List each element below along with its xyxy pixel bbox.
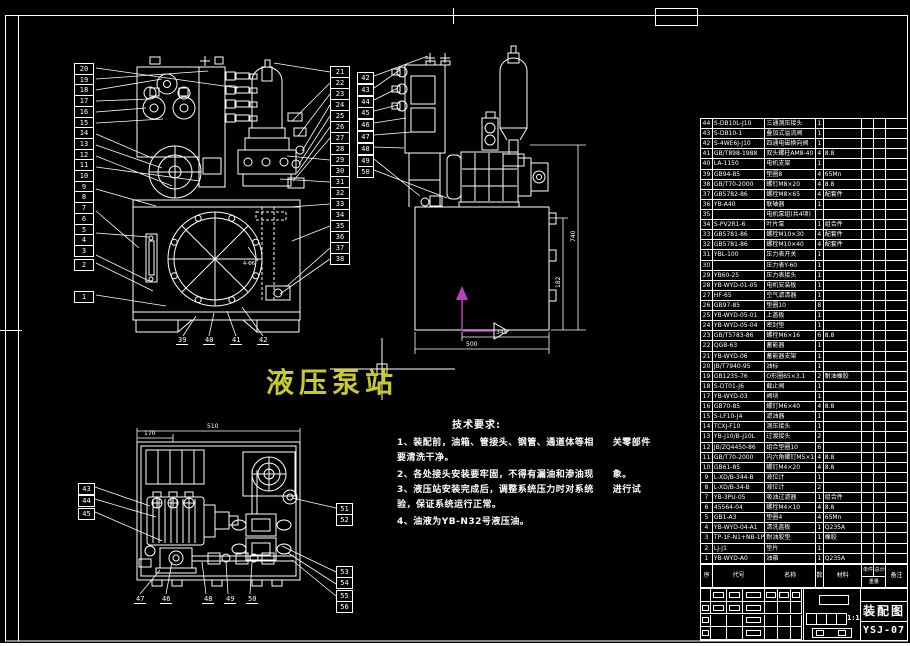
title-block-cell [791, 615, 802, 628]
title-block-cell [791, 589, 802, 602]
bom-cell: 压力表Y-60 [765, 261, 815, 270]
bom-cell: 蓄能器 [765, 341, 815, 350]
bom-cell [874, 422, 886, 431]
bom-cell: 9 [701, 473, 713, 482]
bom-cell: 螺栓M6×16 [765, 331, 815, 340]
bom-cell [886, 210, 907, 219]
bom-cell: 耐油胶垫 [765, 533, 815, 542]
bom-cell [886, 422, 907, 431]
bom-cell: 1 [816, 129, 824, 138]
bom-row-30: 30压力表Y-601 [701, 261, 907, 271]
bom-cell: 8.8 [824, 180, 863, 189]
bom-cell: 4 [816, 463, 824, 472]
bom-cell: 过渡接头 [765, 432, 815, 441]
bom-cell [886, 271, 907, 280]
bom-cell: 21 [701, 352, 713, 361]
bom-cell: 2 [701, 544, 713, 553]
bom-cell: 44 [701, 119, 713, 128]
bom-cell: GB70-85 [713, 402, 765, 411]
bom-cell [886, 341, 907, 350]
callout-plan_bottom-50: 50 [246, 595, 258, 604]
bom-row-3: 3TP-1F-N1+NB-1P耐油胶垫1橡胶 [701, 533, 907, 543]
bom-cell: 1 [816, 321, 824, 330]
bom-cell: YB60-25 [713, 271, 765, 280]
bom-cell [874, 180, 886, 189]
bom-cell [886, 473, 907, 482]
bom-cell: YB-WYD-05-01 [713, 311, 765, 320]
bom-cell: 油标 [765, 362, 815, 371]
bom-cell [874, 473, 886, 482]
bom-cell: 螺钉M8×20 [765, 180, 815, 189]
drawing-type-label: 装配图 [861, 602, 907, 622]
callout-plan_bottom-47: 47 [134, 595, 146, 604]
bom-cell [824, 483, 863, 492]
bom-cell: GB5782-86 [713, 190, 765, 199]
bom-cell: 配套件 [824, 230, 863, 239]
bom-cell: 滤油器 [765, 412, 815, 421]
title-block: 1:1 装配图 YSJ-07 [700, 588, 908, 641]
bom-cell: 吸油过滤器 [765, 493, 815, 502]
bom-table: 44S-DB10L-J10三通测压接头143S-DB10-1叠加式溢流阀142S… [700, 118, 908, 588]
drawing-number: YSJ-07 [861, 622, 907, 640]
bom-cell: 1 [816, 392, 824, 401]
bom-cell: 1 [816, 271, 824, 280]
bom-cell: 密封垫 [765, 321, 815, 330]
bom-cell: 29 [701, 271, 713, 280]
bom-cell: 上盖板 [765, 311, 815, 320]
bom-cell [886, 119, 907, 128]
bom-row-2: 2LJ-J1垫片1 [701, 544, 907, 554]
bom-cell [886, 402, 907, 411]
bom-cell [886, 170, 907, 179]
bom-cell: 2 [816, 372, 824, 381]
bom-cell: 65Mn [824, 513, 863, 522]
bom-cell [874, 432, 886, 441]
bom-cell [874, 372, 886, 381]
bom-row-41: 41GB/T898-1988双头螺柱AM8-4048.8 [701, 149, 907, 159]
bom-row-5: 5GB1-A3垫圈4465Mn [701, 513, 907, 523]
bom-cell [862, 149, 874, 158]
bom-cell: 油箱 [765, 554, 815, 563]
signature-mark [779, 592, 788, 598]
bom-cell [862, 341, 874, 350]
bom-cell: O形圈65×3.1 [765, 372, 815, 381]
bom-rows: 44S-DB10L-J10三通测压接头143S-DB10-1叠加式溢流阀142S… [701, 119, 907, 564]
title-block-cell [778, 589, 791, 602]
callout-plan_left-44: 44 [78, 495, 95, 507]
bom-cell [862, 321, 874, 330]
title-block-cell [711, 589, 727, 602]
bom-cell [874, 200, 886, 209]
bom-cell [886, 331, 907, 340]
bom-cell: 1 [816, 362, 824, 371]
bom-cell: YB-3PU-05 [713, 493, 765, 502]
title-block-cell [701, 602, 711, 615]
bom-cell: 1 [816, 382, 824, 391]
bom-cell: Q235A [824, 554, 863, 563]
bom-cell: GB/T5783-86 [713, 331, 765, 340]
bom-cell: 橡胶 [824, 533, 863, 542]
title-block-blank-cell [861, 589, 907, 602]
bom-cell: 8.8 [824, 149, 863, 158]
bom-cell [824, 119, 863, 128]
callout-side_left-46: 46 [357, 119, 374, 131]
callout-side_left-50: 50 [357, 166, 374, 178]
bom-cell: 1 [816, 291, 824, 300]
bom-cell: 1 [816, 422, 824, 431]
bom-cell: Q235A [824, 523, 863, 532]
bom-cell: 8 [701, 483, 713, 492]
bom-cell: 23 [701, 331, 713, 340]
bom-row-16: 16GB70-85螺钉M6×4048.8 [701, 402, 907, 412]
bom-cell: 37 [701, 190, 713, 199]
callout-side_left-48: 48 [357, 143, 374, 155]
callout-front_bottom-41: 41 [230, 336, 242, 345]
dim-plan-width: 510 [207, 423, 218, 430]
front-view [96, 56, 330, 336]
bom-header-cell: 代号 [713, 565, 765, 587]
bom-cell [886, 301, 907, 310]
bom-row-29: 29YB60-25压力表接头1 [701, 271, 907, 281]
bom-cell [874, 412, 886, 421]
bom-cell: 1 [816, 473, 824, 482]
bom-cell [713, 210, 765, 219]
bom-cell [862, 372, 874, 381]
bom-row-44: 44S-DB10L-J10三通测压接头1 [701, 119, 907, 129]
bom-cell [862, 119, 874, 128]
callout-side_left-45: 45 [357, 107, 374, 119]
bom-cell: 2 [816, 483, 824, 492]
bom-row-21: 21YB-WYD-06蓄能器支架1 [701, 352, 907, 362]
bom-cell [874, 533, 886, 542]
bom-cell: 耐油橡胶 [824, 372, 863, 381]
bom-cell [862, 170, 874, 179]
title-block-cell [727, 602, 743, 615]
bom-cell [874, 513, 886, 522]
bom-row-43: 43S-DB10-1叠加式溢流阀1 [701, 129, 907, 139]
tech-requirement-line: 2、各处接头安装要牢固，不得有漏油和渗油现 象。 [397, 469, 632, 481]
bom-cell [874, 503, 886, 512]
bom-cell [886, 554, 907, 563]
bom-row-33: 33GB5781-86螺栓M10×304配套件 [701, 230, 907, 240]
bom-header-cell: 材料 [824, 565, 863, 587]
bom-cell: 1 [816, 311, 824, 320]
callout-side_left-47: 47 [357, 131, 374, 143]
bom-header-cell: 重量 [862, 577, 885, 587]
bom-row-14: 14TCXJ-F10测压接头1 [701, 422, 907, 432]
bom-cell: JB/ZQ4450-86 [713, 443, 765, 452]
callout-plan_right-52: 52 [336, 514, 353, 526]
bom-row-28: 28YB-WYD-01-05电机安装板1 [701, 281, 907, 291]
bom-cell: 16 [701, 402, 713, 411]
bom-cell: 4 [816, 503, 824, 512]
bom-cell [874, 210, 886, 219]
bom-row-4: 4YB-WYD-04-A1清洗盖板1Q235A [701, 523, 907, 533]
bom-cell: 1 [816, 554, 824, 563]
bom-cell: 1 [816, 119, 824, 128]
callout-side_left-42: 42 [357, 72, 374, 84]
bom-cell: QGB-63 [713, 341, 765, 350]
dimension-lines-plan [137, 428, 300, 442]
title-block-cell [743, 615, 765, 628]
bom-cell: 8.8 [824, 463, 863, 472]
bom-row-38: 38GB/T70-2000螺钉M8×2048.8 [701, 180, 907, 190]
signature-mark [713, 605, 724, 611]
bom-cell [886, 372, 907, 381]
bom-row-9: 9L-XD/B-344-B液位计1 [701, 473, 907, 483]
bom-cell [862, 331, 874, 340]
callout-front_left-3: 3 [74, 245, 94, 257]
bom-cell: 4 [701, 523, 713, 532]
bom-row-7: 7YB-3PU-05吸油过滤器1组合件 [701, 493, 907, 503]
bom-cell: GB97-85 [713, 301, 765, 310]
bom-row-1: 1YB-WYD-A0油箱1Q235A [701, 554, 907, 564]
bom-cell [886, 463, 907, 472]
bom-cell [874, 281, 886, 290]
bom-cell [886, 453, 907, 462]
bom-cell: GB/T898-1988 [713, 149, 765, 158]
bom-cell [862, 463, 874, 472]
bom-cell: 联轴器 [765, 200, 815, 209]
bom-cell: 1 [816, 281, 824, 290]
bom-cell: 电机泵组(共4项) [765, 210, 815, 219]
callout-plan_bottom-49: 49 [224, 595, 236, 604]
bom-cell [862, 129, 874, 138]
bom-cell [886, 432, 907, 441]
bom-cell: 组合件 [824, 493, 863, 502]
bom-cell: GB5781-86 [713, 240, 765, 249]
bom-cell [824, 432, 863, 441]
callout-plan_bottom-46: 46 [160, 595, 172, 604]
signature-mark [702, 605, 709, 611]
bom-cell: 7 [701, 493, 713, 502]
bom-cell: 4 [816, 513, 824, 522]
signature-mark [746, 592, 761, 598]
bom-cell [862, 513, 874, 522]
bom-cell: 4 [816, 180, 824, 189]
title-block-cell [727, 589, 743, 602]
bom-cell [824, 311, 863, 320]
bom-cell: 三通测压接头 [765, 119, 815, 128]
bom-row-34: 34S-PV2R1-6叶片泵1组合件 [701, 220, 907, 230]
bom-cell [874, 382, 886, 391]
bom-cell [862, 180, 874, 189]
bom-cell: 组合件 [824, 220, 863, 229]
bom-cell: 垫圈10 [765, 301, 815, 310]
side-view [374, 46, 586, 354]
bom-cell: 叠加式溢流阀 [765, 129, 815, 138]
bom-cell: 压力表接头 [765, 271, 815, 280]
bom-row-20: 20JB/T7940-95油标1 [701, 362, 907, 372]
bom-cell [874, 250, 886, 259]
bom-cell [824, 412, 863, 421]
bom-cell [874, 362, 886, 371]
bom-cell [874, 402, 886, 411]
bom-cell [886, 493, 907, 502]
bom-row-25: 25YB-WYD-05-01上盖板1 [701, 311, 907, 321]
bom-row-36: 36YB-A40联轴器1 [701, 200, 907, 210]
bom-cell: 8.8 [824, 503, 863, 512]
callout-front_left_lower-1: 1 [74, 291, 94, 303]
bom-cell [874, 453, 886, 462]
bom-cell: S-DB10L-J10 [713, 119, 765, 128]
callout-front_bottom-42: 42 [257, 336, 269, 345]
bom-cell [862, 554, 874, 563]
signature-mark [746, 617, 761, 623]
callout-plan_left-45: 45 [78, 508, 95, 520]
bom-cell: 39 [701, 170, 713, 179]
bom-cell [824, 200, 863, 209]
bom-row-24: 24YB-WYD-05-04密封垫1 [701, 321, 907, 331]
bom-cell: 22 [701, 341, 713, 350]
bom-cell [886, 321, 907, 330]
bom-cell [874, 352, 886, 361]
bom-cell [862, 473, 874, 482]
tech-requirement-line: 要清洗干净。 [397, 452, 454, 464]
bom-cell: YB-A40 [713, 200, 765, 209]
bom-cell [886, 159, 907, 168]
bom-cell [824, 271, 863, 280]
bom-cell: 8.8 [824, 402, 863, 411]
bom-cell: S-DT01-J6 [713, 382, 765, 391]
bom-cell [862, 352, 874, 361]
bom-cell: L-XD/B-344-B [713, 473, 765, 482]
bom-cell [862, 301, 874, 310]
bom-cell: 65Mn [824, 170, 863, 179]
bom-cell [862, 271, 874, 280]
bom-row-26: 26GB97-85垫圈108 [701, 301, 907, 311]
bom-cell: 叶片泵 [765, 220, 815, 229]
bom-cell [824, 261, 863, 270]
bom-header-cell: 备注 [886, 565, 907, 587]
bom-cell: 18 [701, 382, 713, 391]
bom-cell: 19 [701, 372, 713, 381]
bom-cell: 四通电磁换向阀 [765, 139, 815, 148]
bom-cell: 2 [816, 432, 824, 441]
title-block-cell [765, 627, 778, 640]
bom-cell: 1 [816, 352, 824, 361]
bom-cell: 1 [816, 250, 824, 259]
bom-cell [886, 362, 907, 371]
bom-cell [874, 331, 886, 340]
bom-cell: 41 [701, 149, 713, 158]
bom-cell: S-4WE6J-J10 [713, 139, 765, 148]
bom-cell [862, 200, 874, 209]
title-block-cell [778, 627, 791, 640]
bom-cell: YB-WYD-06 [713, 352, 765, 361]
bom-cell: 液位计 [765, 483, 815, 492]
bom-cell [824, 210, 863, 219]
bom-cell: JB/T7940-95 [713, 362, 765, 371]
title-block-cell [711, 602, 727, 615]
tech-requirements-heading: 技术要求: [452, 420, 501, 432]
callout-plan_right-54: 54 [336, 577, 353, 589]
bom-cell [886, 544, 907, 553]
bom-cell: 11 [701, 453, 713, 462]
bom-cell: S-PV2R1-6 [713, 220, 765, 229]
signature-mark [792, 592, 800, 598]
bom-cell: YB-WYD-04-A1 [713, 523, 765, 532]
bom-cell [862, 210, 874, 219]
signature-mark [746, 630, 761, 636]
bom-cell: 1 [816, 341, 824, 350]
bom-cell: L-XD/B-34-B [713, 483, 765, 492]
bom-cell [874, 149, 886, 158]
drawing-title: 液压泵站 [266, 368, 398, 398]
title-block-mark-box [819, 595, 849, 605]
bom-cell: 1 [816, 139, 824, 148]
signature-mark [702, 630, 709, 636]
title-block-cell [778, 615, 791, 628]
title-block-seg-4 [836, 613, 847, 625]
bom-cell [874, 301, 886, 310]
dim-side-inner: 182 [555, 277, 562, 288]
bom-cell: GB1235-76 [713, 372, 765, 381]
bom-cell: 28 [701, 281, 713, 290]
bom-cell [886, 523, 907, 532]
bom-row-18: 18S-DT01-J6截止阀1 [701, 382, 907, 392]
bom-row-6: 645564-04螺栓M4×1048.8 [701, 503, 907, 513]
oil-tank-front [133, 200, 300, 332]
bom-cell: 1 [816, 220, 824, 229]
cad-sheet[interactable]: 液压泵站 技术要求: 1、装配前，油箱、管接头、钢管、通道体等相 关零部件要清洗… [0, 0, 910, 646]
title-block-cell [765, 602, 778, 615]
bom-row-42: 42S-4WE6J-J10四通电磁换向阀1 [701, 139, 907, 149]
bom-row-8: 8L-XD/B-34-B液位计2 [701, 483, 907, 493]
bom-cell: 45564-04 [713, 503, 765, 512]
bom-cell [862, 281, 874, 290]
bom-cell: 33 [701, 230, 713, 239]
bom-cell [862, 523, 874, 532]
bom-cell: 30 [701, 261, 713, 270]
bom-cell: 1 [816, 261, 824, 270]
title-block-cell [791, 627, 802, 640]
bom-row-40: 40LA-1150电机支架1 [701, 159, 907, 169]
bom-cell [874, 230, 886, 239]
bom-cell: 电机支架 [765, 159, 815, 168]
bom-row-15: 15S-LF10-J4滤油器1 [701, 412, 907, 422]
bom-cell: 4 [816, 230, 824, 239]
bom-cell: 电机安装板 [765, 281, 815, 290]
bom-cell: TP-1F-N1+NB-1P [713, 533, 765, 542]
bom-cell: TCXJ-F10 [713, 422, 765, 431]
bom-cell [824, 341, 863, 350]
bom-cell [886, 503, 907, 512]
bom-cell [862, 220, 874, 229]
bom-cell [874, 220, 886, 229]
bom-cell [862, 493, 874, 502]
bom-cell [886, 200, 907, 209]
bom-cell [874, 311, 886, 320]
bom-cell [874, 261, 886, 270]
title-block-cell [778, 602, 791, 615]
bom-row-17: 17YB-WYD-03阀块1 [701, 392, 907, 402]
bom-cell [862, 453, 874, 462]
bom-cell: 4 [816, 402, 824, 411]
dim-side-height: 740 [570, 231, 577, 242]
bom-cell: 14 [701, 422, 713, 431]
tech-requirement-line: 4、油液为YB-N32号液压油。 [397, 516, 529, 528]
bom-cell: 40 [701, 159, 713, 168]
bom-cell: 24 [701, 321, 713, 330]
bom-cell: 4 [816, 190, 824, 199]
bom-cell [886, 230, 907, 239]
bom-cell [862, 503, 874, 512]
bom-cell: 螺钉M4×20 [765, 463, 815, 472]
bom-cell: 阀块 [765, 392, 815, 401]
title-block-cell [701, 627, 711, 640]
title-block-right: 装配图 YSJ-07 [861, 589, 907, 640]
